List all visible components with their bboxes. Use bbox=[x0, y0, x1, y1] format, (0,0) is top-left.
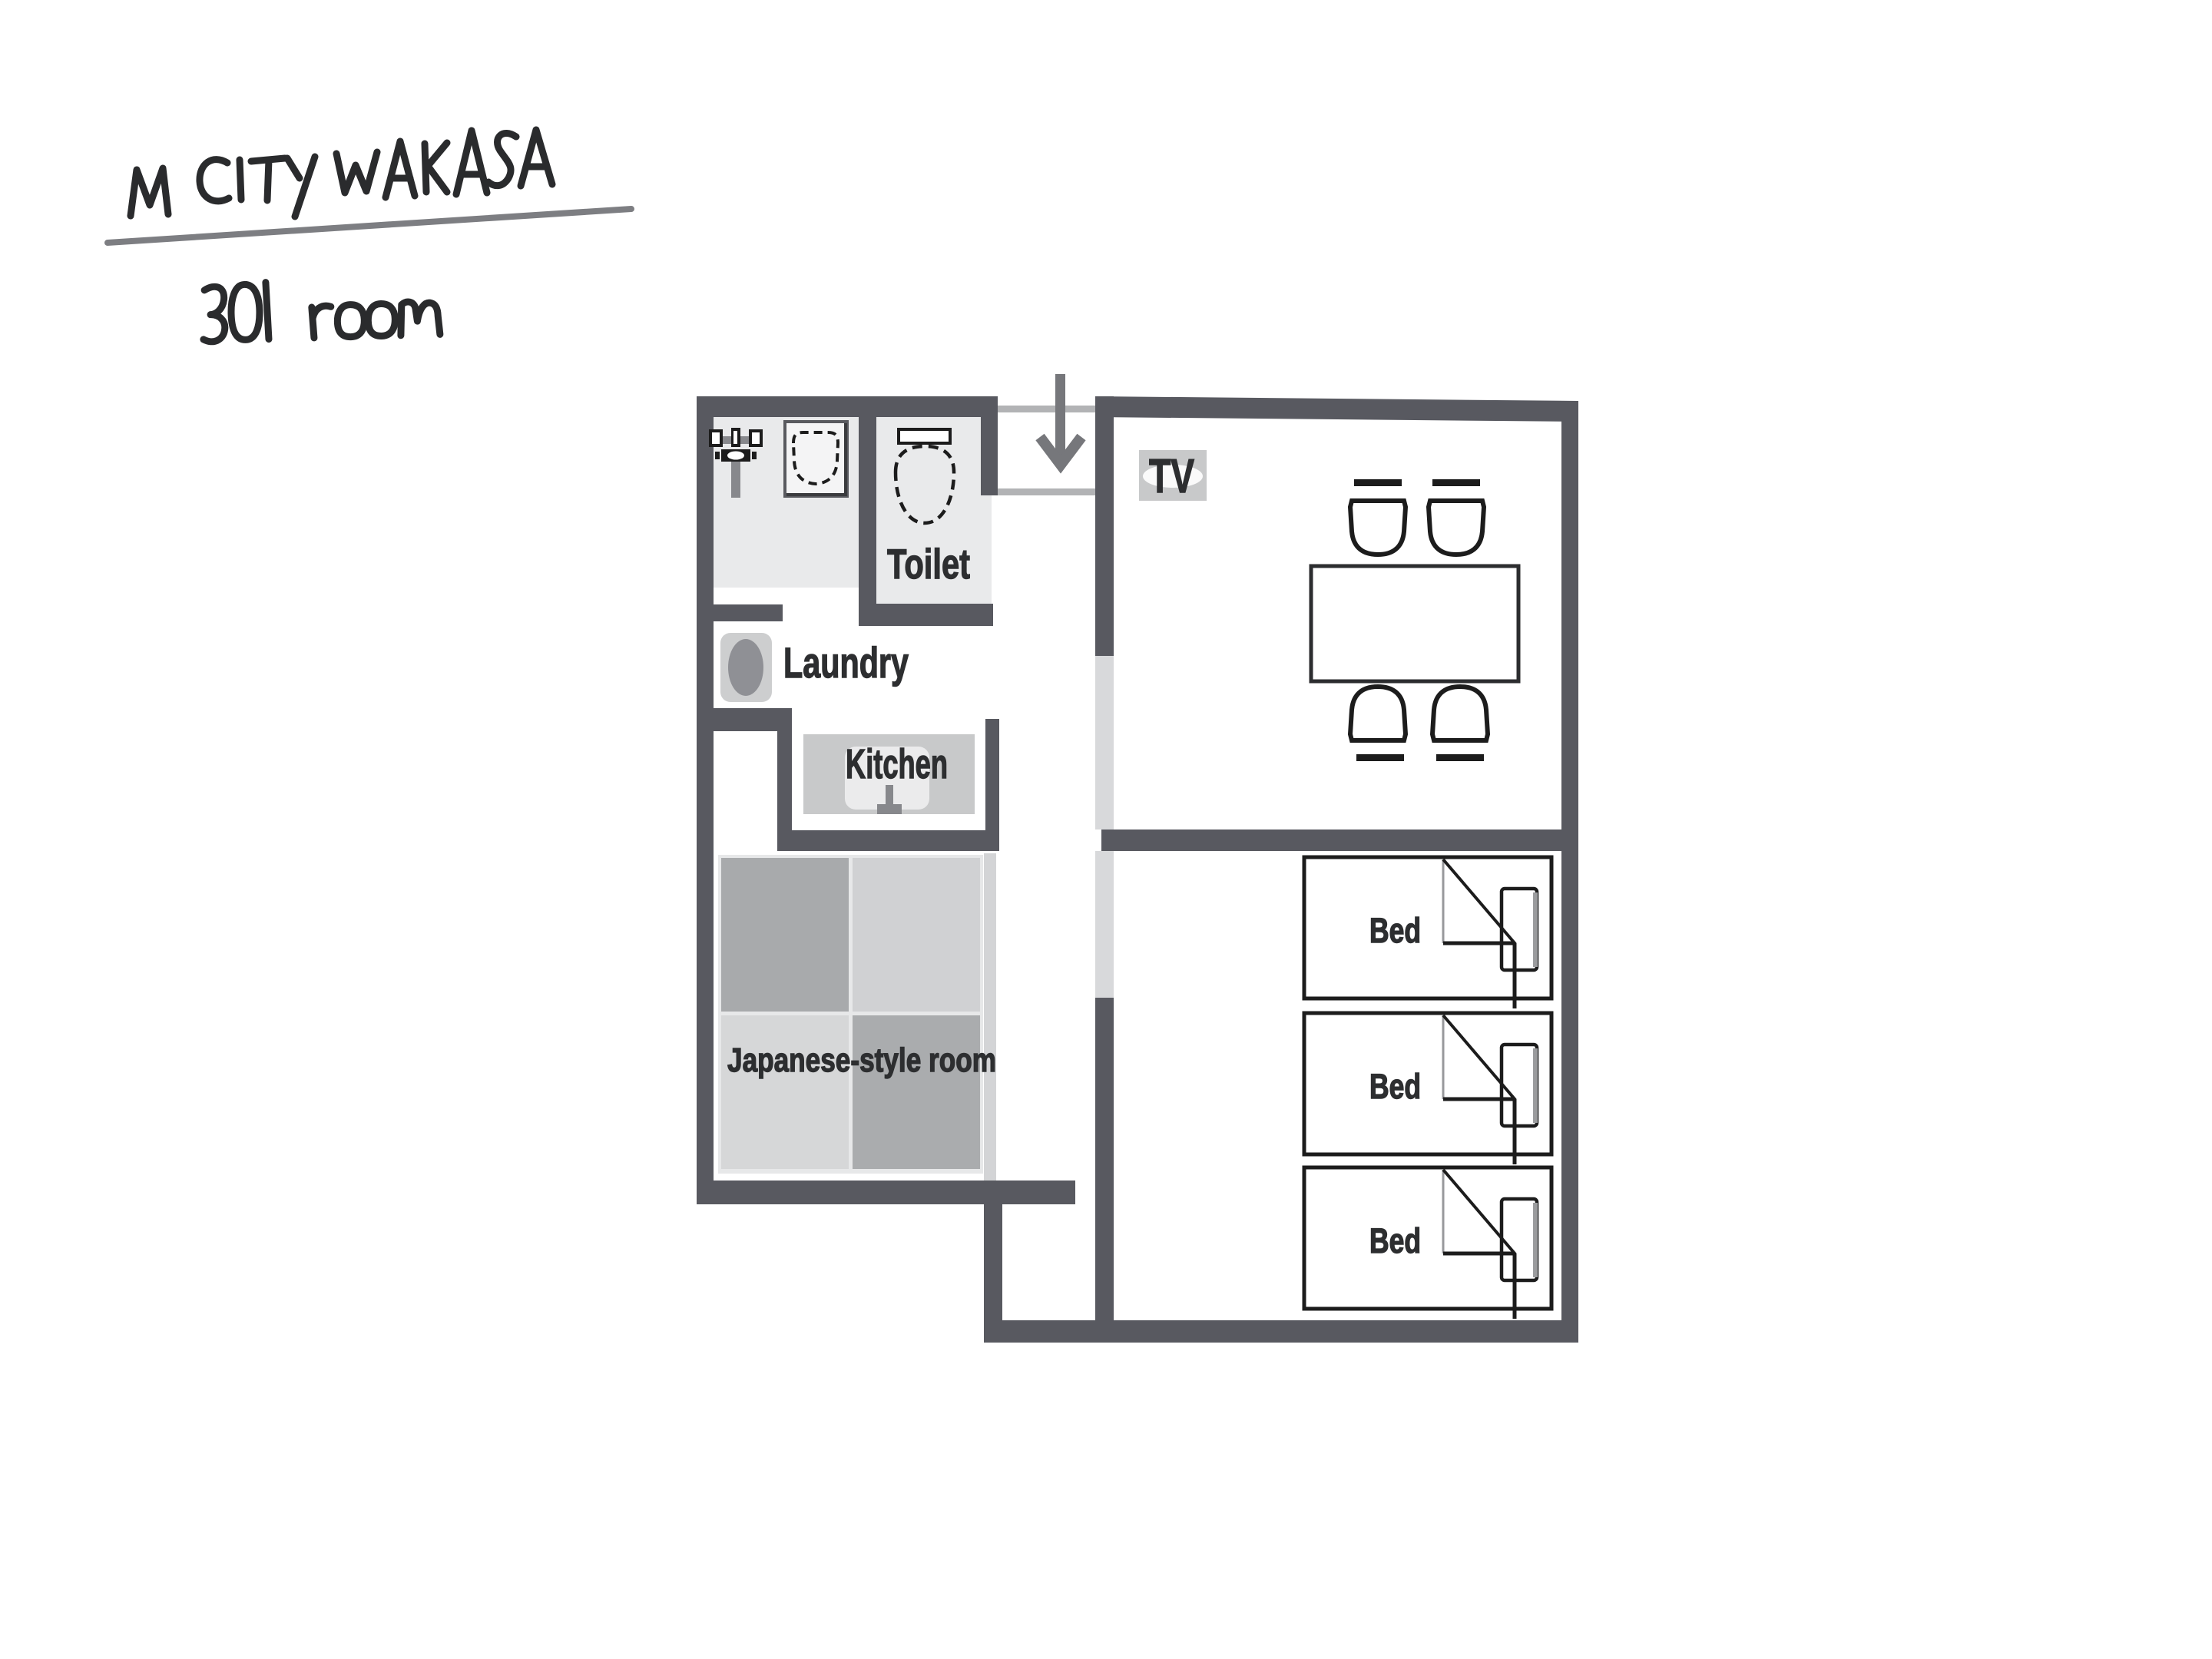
svg-text:Kitchen: Kitchen bbox=[846, 741, 948, 787]
svg-text:TV: TV bbox=[1149, 450, 1194, 503]
svg-text:Bed: Bed bbox=[1369, 1067, 1421, 1106]
svg-text:Bed: Bed bbox=[1369, 1221, 1421, 1260]
svg-text:Bed: Bed bbox=[1369, 911, 1421, 950]
svg-text:Laundry: Laundry bbox=[783, 638, 909, 687]
svg-text:Japanese-style room: Japanese-style room bbox=[727, 1041, 996, 1079]
svg-text:Toilet: Toilet bbox=[887, 540, 970, 588]
